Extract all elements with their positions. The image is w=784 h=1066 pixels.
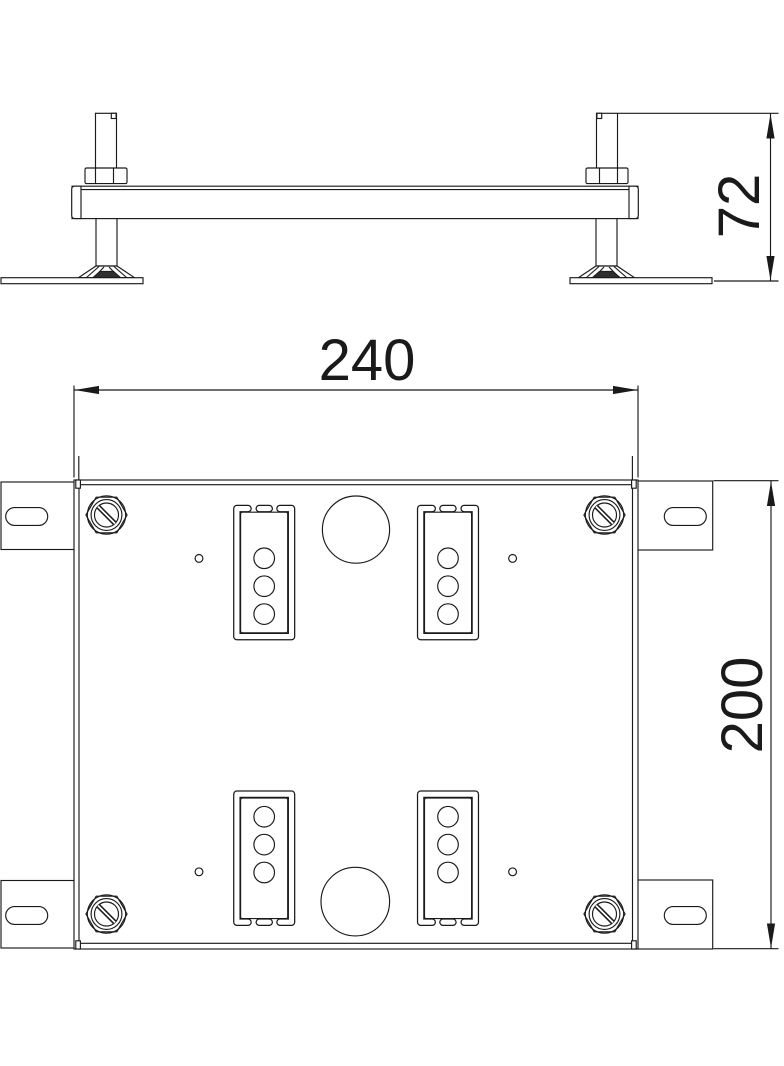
- crossbar-end-cap-right: [629, 186, 638, 218]
- corner-notch-top-left: [76, 480, 81, 488]
- technical-drawing-page: 72: [0, 0, 784, 1066]
- tab-slot-bottom-right: [664, 907, 706, 925]
- dimension-label-200: 200: [710, 657, 775, 754]
- arrowhead-left-icon: [75, 386, 99, 394]
- mounting-tab-bottom-left: [1, 881, 77, 949]
- side-elevation-view: 72: [1, 113, 779, 283]
- arrowhead-down-icon: [766, 256, 774, 280]
- mounting-tab-bottom-right: [635, 880, 713, 949]
- arrowhead-right-icon: [613, 386, 637, 394]
- corner-notch-top-right: [632, 480, 637, 488]
- crossbar: [72, 186, 639, 218]
- dimension-240: 240: [74, 328, 638, 480]
- tab-slot-bottom-left: [6, 907, 48, 925]
- mounting-tab-top-right: [635, 481, 713, 550]
- tab-slot-top-left: [6, 508, 48, 526]
- knockout-hole-bottom: [321, 867, 390, 936]
- dimension-72: 72: [618, 113, 779, 281]
- tab-slot-top-right: [664, 508, 706, 526]
- knockout-hole-top: [322, 496, 389, 563]
- dimension-label-240: 240: [319, 328, 416, 393]
- dimension-label-72: 72: [707, 174, 772, 239]
- arrowhead-down-icon: [767, 924, 775, 949]
- technical-drawing-canvas: 72: [0, 0, 784, 1066]
- arrowhead-up-icon: [766, 114, 774, 139]
- crossbar-end-cap-left: [72, 186, 81, 218]
- arrowhead-up-icon: [767, 481, 775, 506]
- dimension-200: 200: [710, 481, 779, 949]
- plan-view: 240 200: [1, 328, 779, 949]
- corner-notch-bottom-right: [632, 941, 637, 949]
- corner-notch-bottom-left: [76, 941, 81, 949]
- mounting-tab-top-left: [1, 482, 77, 550]
